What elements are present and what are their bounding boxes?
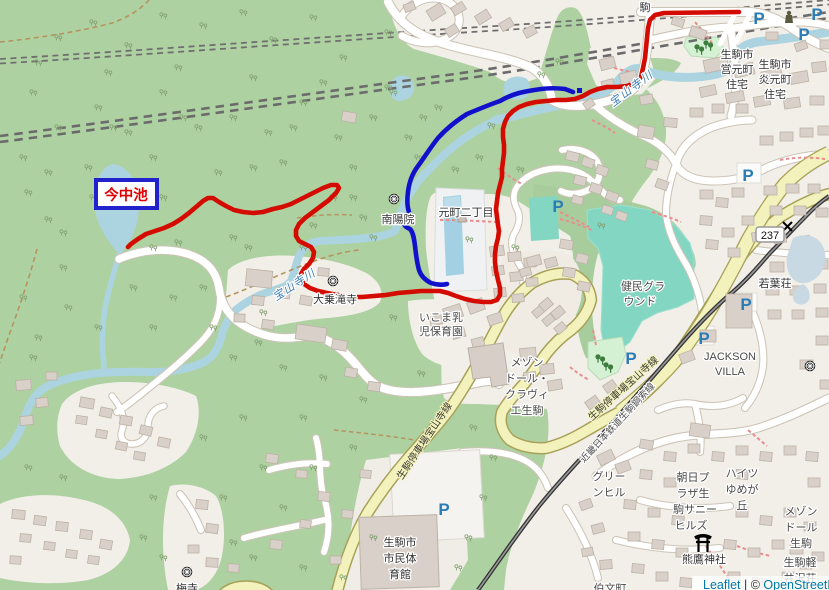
svg-text:健民グラ: 健民グラ <box>621 279 665 293</box>
svg-text:メゾン: メゾン <box>785 505 818 518</box>
svg-text:エ生駒: エ生駒 <box>511 403 544 417</box>
svg-text:ウンド: ウンド <box>624 295 657 308</box>
svg-text:ゆめが: ゆめが <box>726 482 759 496</box>
svg-text:P: P <box>625 349 636 368</box>
svg-text:大乗滝寺: 大乗滝寺 <box>313 292 357 306</box>
svg-text:ドール・: ドール・ <box>505 373 549 385</box>
svg-text:児保育園: 児保育園 <box>419 324 463 338</box>
svg-text:生駒軽: 生駒軽 <box>784 555 817 569</box>
svg-text:生駒市: 生駒市 <box>721 47 754 61</box>
svg-text:メゾン: メゾン <box>511 356 544 369</box>
svg-text:丘: 丘 <box>737 499 748 512</box>
svg-text:熊鷹神社: 熊鷹神社 <box>682 552 726 566</box>
svg-text:ラザ生: ラザ生 <box>677 486 710 500</box>
svg-text:南陽院: 南陽院 <box>382 212 415 226</box>
svg-text:生駒市: 生駒市 <box>759 57 792 71</box>
svg-text:ドール: ドール <box>785 522 818 534</box>
svg-text:伯文町: 伯文町 <box>594 581 627 590</box>
svg-text:駒: 駒 <box>640 1 651 14</box>
svg-text:P: P <box>552 197 563 216</box>
svg-text:生駒市: 生駒市 <box>384 535 417 549</box>
svg-text:P: P <box>798 25 809 44</box>
svg-text:P: P <box>698 329 709 348</box>
svg-text:住宅: 住宅 <box>764 87 786 101</box>
svg-text:P: P <box>742 166 753 185</box>
svg-text:今中池: 今中池 <box>103 186 148 204</box>
svg-text:市民体: 市民体 <box>384 551 417 565</box>
svg-text:Leaflet | © OpenStreetMa: Leaflet | © OpenStreetMa <box>703 578 829 590</box>
svg-text:営元町: 営元町 <box>721 62 754 76</box>
svg-text:ヒルズ: ヒルズ <box>675 518 708 532</box>
svg-text:駒サニー: 駒サニー <box>673 503 717 516</box>
svg-text:住宅: 住宅 <box>726 77 748 91</box>
svg-text:育館: 育館 <box>389 567 411 581</box>
svg-text:いこま乳: いこま乳 <box>419 311 463 324</box>
svg-text:ンヒル: ンヒル <box>593 486 626 499</box>
svg-text:グリー: グリー <box>593 469 626 483</box>
svg-text:朝日プ: 朝日プ <box>677 471 710 484</box>
svg-text:P: P <box>740 295 751 314</box>
svg-text:元町二丁目: 元町二丁目 <box>439 207 494 219</box>
svg-text:炎元町: 炎元町 <box>759 73 792 86</box>
svg-text:P: P <box>811 5 822 24</box>
svg-text:ハイツ: ハイツ <box>726 468 759 480</box>
svg-text:P: P <box>438 500 449 519</box>
svg-text:JACKSON: JACKSON <box>704 351 756 363</box>
svg-text:クラヴィ: クラヴィ <box>505 387 549 401</box>
svg-text:梅寺: 梅寺 <box>176 581 198 590</box>
svg-text:若葉荘: 若葉荘 <box>759 276 792 290</box>
svg-text:237: 237 <box>761 230 779 242</box>
svg-text:P: P <box>753 9 764 28</box>
svg-text:生駒: 生駒 <box>790 536 812 550</box>
svg-text:VILLA: VILLA <box>715 366 746 378</box>
